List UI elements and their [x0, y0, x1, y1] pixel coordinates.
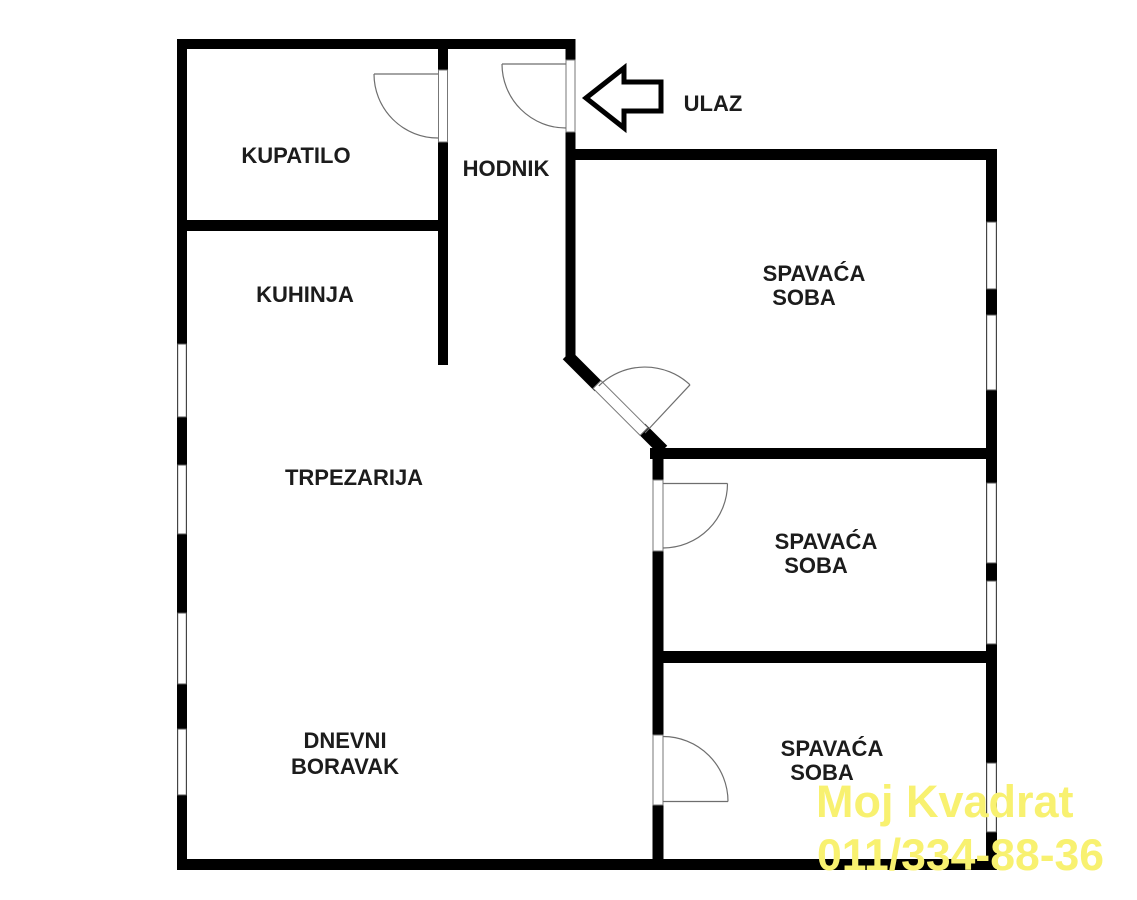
svg-text:SPAVAĆA: SPAVAĆA: [781, 736, 884, 761]
svg-text:SPAVAĆA: SPAVAĆA: [775, 529, 878, 554]
svg-text:ULAZ: ULAZ: [684, 91, 743, 116]
svg-text:SPAVAĆA: SPAVAĆA: [763, 261, 866, 286]
svg-text:DNEVNI: DNEVNI: [303, 728, 386, 753]
svg-text:KUPATILO: KUPATILO: [241, 143, 350, 168]
svg-text:KUHINJA: KUHINJA: [256, 282, 354, 307]
svg-text:SOBA: SOBA: [772, 285, 836, 310]
svg-text:011/334-88-36: 011/334-88-36: [817, 831, 1104, 880]
svg-text:TRPEZARIJA: TRPEZARIJA: [285, 465, 423, 490]
svg-text:HODNIK: HODNIK: [463, 156, 550, 181]
svg-text:SOBA: SOBA: [784, 553, 848, 578]
svg-text:BORAVAK: BORAVAK: [291, 754, 399, 779]
svg-text:Moj Kvadrat: Moj Kvadrat: [816, 776, 1074, 827]
